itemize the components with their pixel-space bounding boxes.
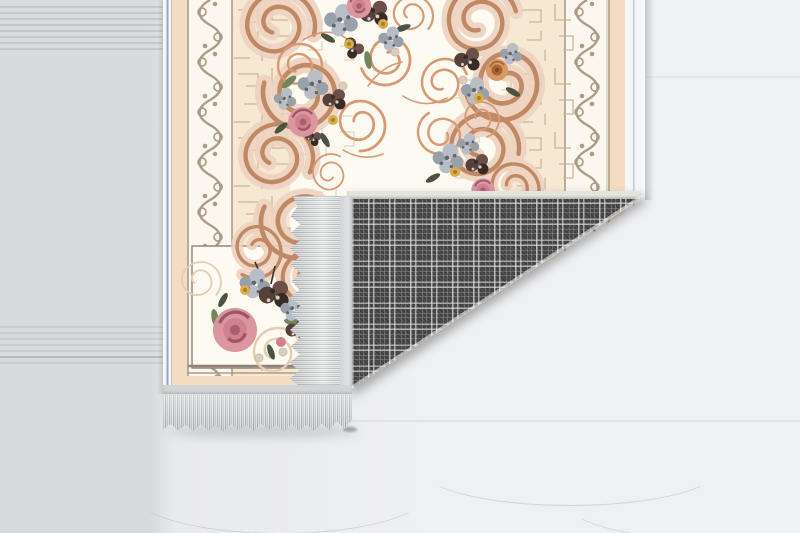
plank-seam	[646, 76, 800, 78]
rug-shadow	[157, 0, 163, 394]
wood-grain-arc	[130, 448, 430, 533]
fringe-bottom-edge-header	[163, 385, 352, 394]
folded-edge-binding	[347, 191, 641, 199]
plaid-backing	[347, 197, 645, 393]
wood-grain-streak	[0, 326, 165, 366]
fringe-folded-edge-header	[340, 196, 352, 397]
wood-grain-streak	[0, 6, 165, 52]
rug-shadow	[645, 0, 654, 200]
plank-seam	[0, 356, 164, 358]
rug-folded-corner	[347, 191, 647, 393]
plank-seam	[290, 420, 800, 422]
product-photo: Product photograph of a decorative recta…	[0, 0, 800, 533]
